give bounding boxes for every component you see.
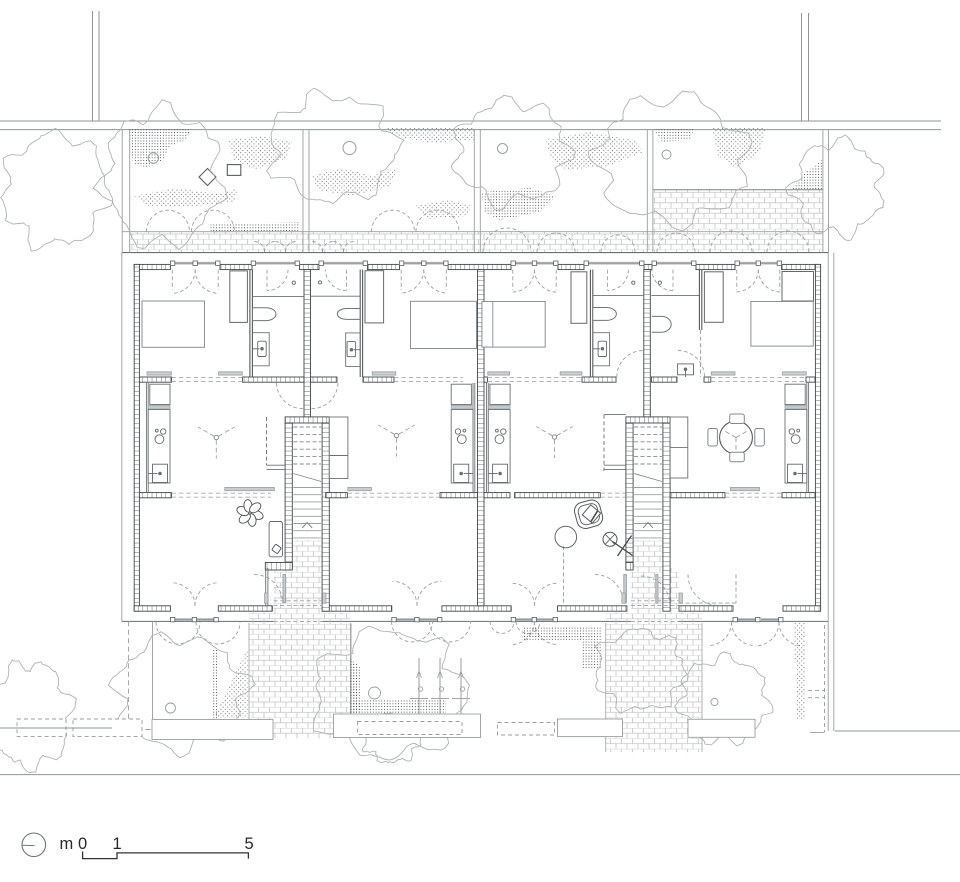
svg-text:m: m xyxy=(60,835,74,853)
svg-text:5: 5 xyxy=(245,835,254,853)
svg-text:0: 0 xyxy=(78,835,87,853)
svg-text:1: 1 xyxy=(113,835,122,853)
